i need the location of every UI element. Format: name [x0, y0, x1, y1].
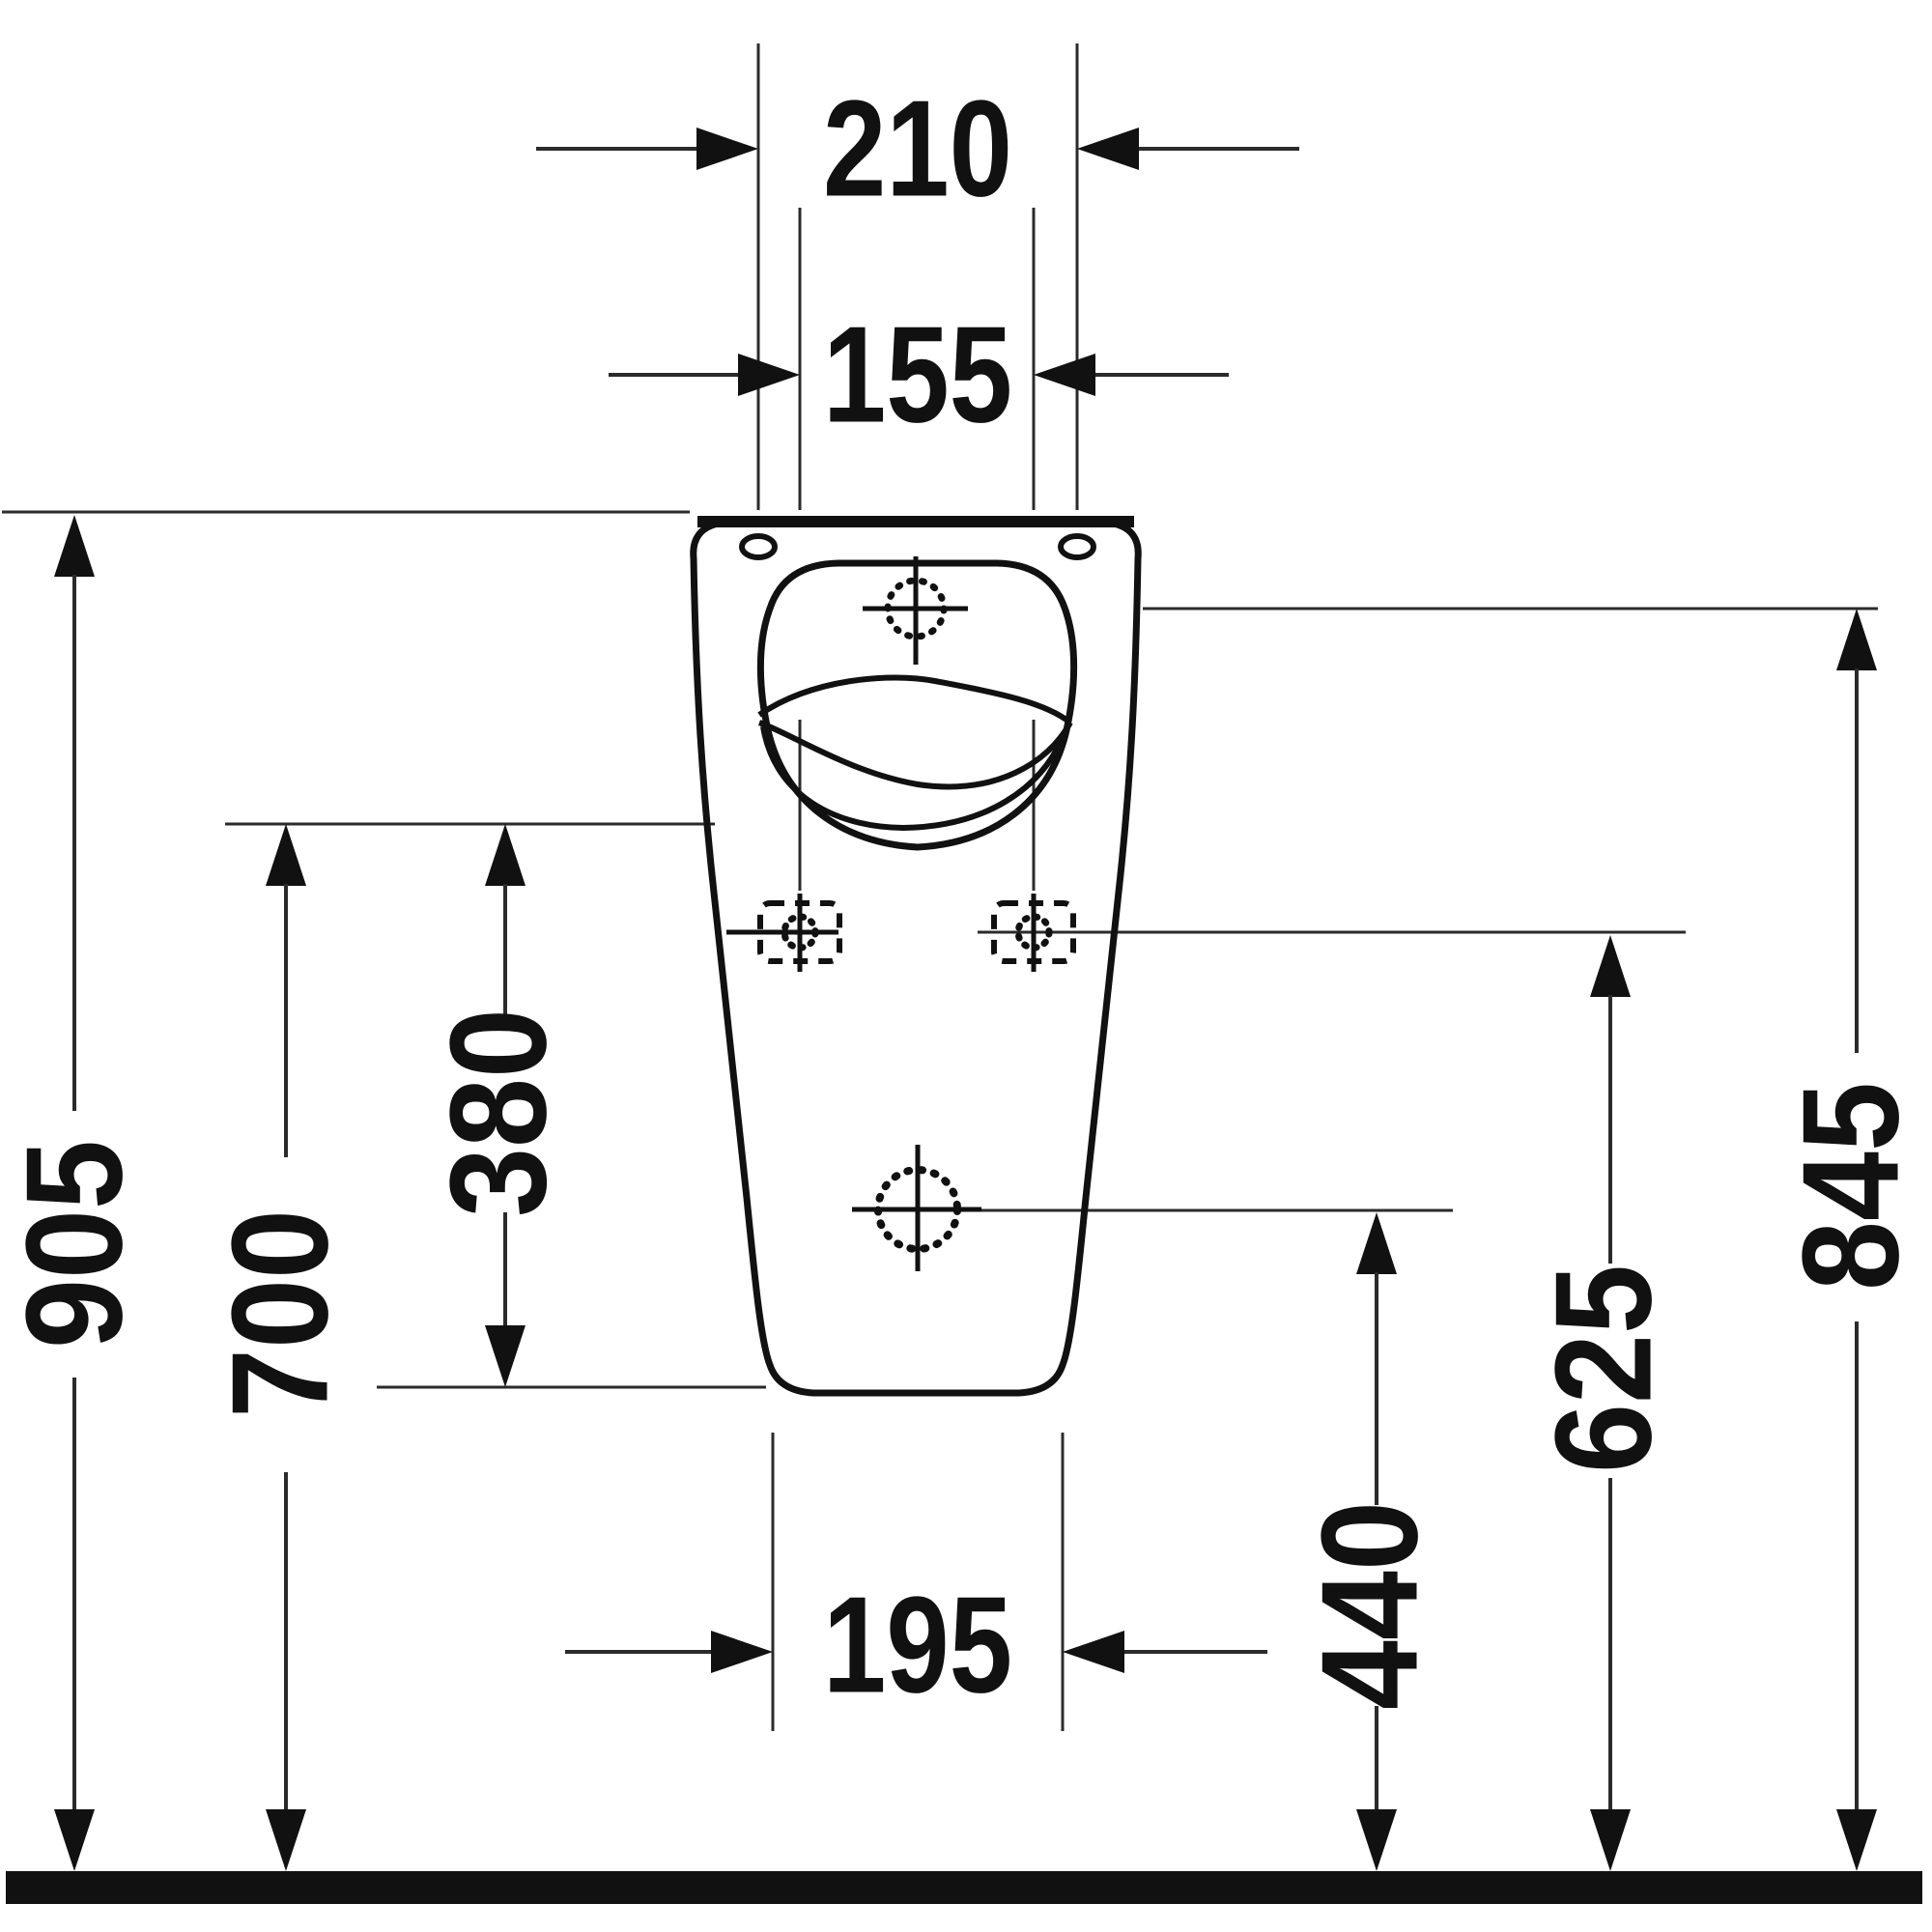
mounting-hole-left-icon	[742, 536, 775, 557]
arrowhead-up-icon	[54, 515, 95, 577]
dimension-value-195: 195	[823, 1569, 1012, 1722]
arrowhead-left-icon	[1063, 1631, 1124, 1673]
urinal-dimension-drawing: 210 155 195 905 700 380	[0, 0, 1932, 1932]
dimension-value-210: 210	[823, 72, 1012, 226]
arrowhead-up-icon	[1590, 935, 1631, 997]
dimension-value-700: 700	[204, 1209, 357, 1418]
dimension-380: 380	[422, 824, 576, 1387]
arrowhead-down-icon	[1836, 1809, 1877, 1871]
arrowhead-right-icon	[711, 1631, 773, 1673]
arrowhead-left-icon	[1034, 354, 1095, 396]
dimension-155: 155	[609, 298, 1229, 452]
arrowhead-up-icon	[485, 824, 526, 886]
arrowhead-up-icon	[1836, 609, 1877, 670]
dimension-210: 210	[536, 72, 1299, 226]
dimension-value-380: 380	[422, 1009, 576, 1217]
arrowhead-down-icon	[266, 1809, 306, 1871]
dimension-value-905: 905	[0, 1140, 152, 1349]
arrowhead-down-icon	[1356, 1809, 1397, 1871]
inlet-crosshair-icon	[863, 556, 968, 665]
dimension-625: 625	[1527, 935, 1681, 1871]
dimension-value-625: 625	[1527, 1264, 1681, 1473]
extension-lines	[2, 43, 1878, 1731]
technical-drawing-page: 210 155 195 905 700 380	[0, 0, 1932, 1932]
arrowhead-up-icon	[266, 824, 306, 886]
dimension-value-845: 845	[1775, 1082, 1928, 1291]
arrowhead-right-icon	[696, 128, 758, 170]
arrowhead-down-icon	[1590, 1809, 1631, 1871]
arrowhead-down-icon	[485, 1325, 526, 1387]
dimension-700: 700	[204, 824, 357, 1871]
dimension-905: 905	[0, 515, 152, 1871]
dimension-440: 440	[1293, 1212, 1447, 1871]
basin-front-lip-curve	[759, 723, 1070, 786]
arrowhead-down-icon	[54, 1809, 95, 1871]
floor-line	[6, 1871, 1922, 1904]
fixation-point-left-icon	[726, 894, 839, 972]
arrowhead-left-icon	[1077, 128, 1139, 170]
dimension-845: 845	[1775, 609, 1928, 1871]
dimension-195: 195	[565, 1569, 1267, 1722]
arrowhead-right-icon	[738, 354, 800, 396]
basin-back-rim-curve	[759, 677, 1070, 723]
dimension-value-155: 155	[823, 298, 1012, 452]
dimension-value-440: 440	[1293, 1501, 1447, 1710]
outlet-crosshair-icon	[852, 1145, 981, 1271]
mounting-hole-right-icon	[1061, 536, 1094, 557]
arrowhead-up-icon	[1356, 1212, 1397, 1274]
